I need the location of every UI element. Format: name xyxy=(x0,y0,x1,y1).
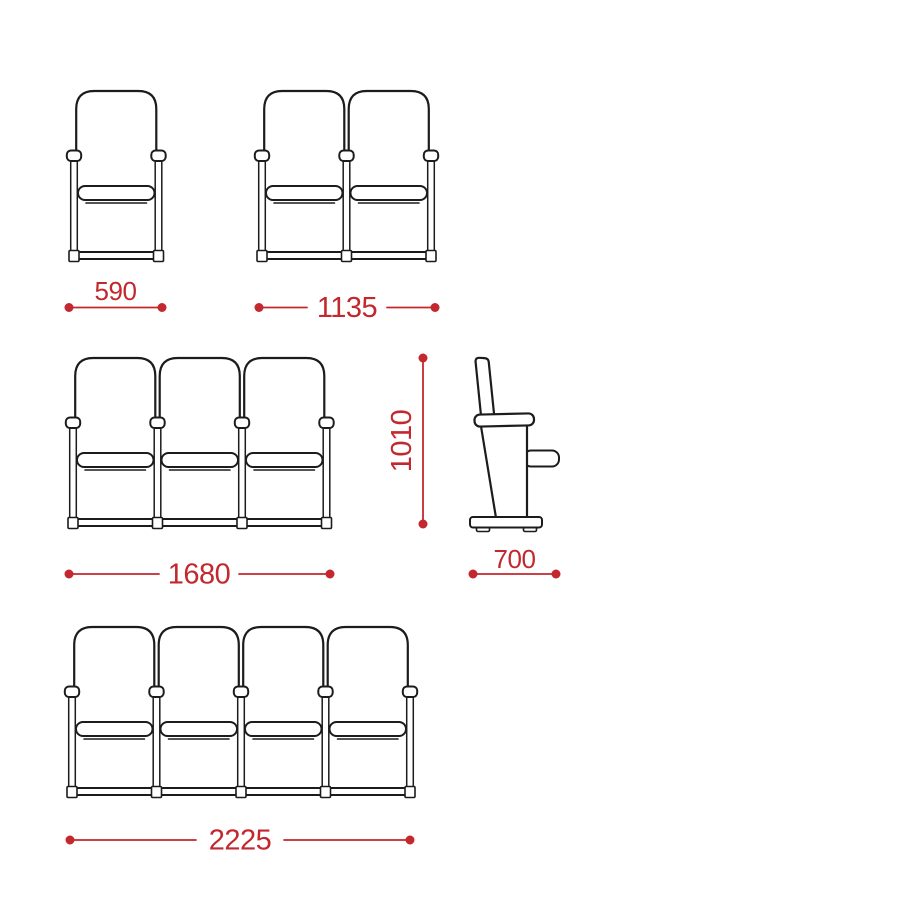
dimension-label: 1135 xyxy=(317,292,377,324)
quad-seat-front-view xyxy=(65,627,417,798)
floor-rail xyxy=(70,519,331,526)
height-dimension-1010: 1010 xyxy=(386,354,428,529)
armrest-cap xyxy=(67,151,81,162)
seat-unit xyxy=(328,627,408,739)
width-dimension-1680: 1680 xyxy=(65,559,335,591)
frame-post xyxy=(153,695,160,791)
foot-block xyxy=(236,787,246,798)
dimension-label: 700 xyxy=(494,544,536,574)
dimension-label: 1680 xyxy=(168,559,231,591)
frame-post xyxy=(71,159,78,255)
foot-block xyxy=(405,787,415,798)
armrest-side xyxy=(474,413,534,426)
armrest-cap xyxy=(151,151,165,162)
dimension-label: 1010 xyxy=(386,410,418,473)
dimension-dot xyxy=(326,570,335,579)
armrest-cap xyxy=(235,418,249,429)
seat-unit xyxy=(349,91,429,203)
armrest-cap xyxy=(403,687,417,698)
seat-unit xyxy=(160,358,240,470)
depth-dimension-700: 700 xyxy=(469,544,561,579)
seat-unit xyxy=(75,358,155,470)
seat-unit xyxy=(243,627,323,739)
frame-post xyxy=(322,695,329,791)
foot-block xyxy=(426,251,436,262)
foot-block xyxy=(321,787,331,798)
foot-block xyxy=(342,251,352,262)
dimension-dot xyxy=(552,570,561,579)
seat-unit xyxy=(159,627,239,739)
frame-post xyxy=(69,695,76,791)
foot-block xyxy=(257,251,267,262)
seat-unit xyxy=(76,91,156,203)
seating-diagram: 590 1135 xyxy=(0,0,900,900)
width-dimension-1135: 1135 xyxy=(255,292,440,324)
dimension-label: 590 xyxy=(95,276,137,306)
armrest-cap xyxy=(234,687,248,698)
armrest-cap xyxy=(65,687,79,698)
foot-block xyxy=(68,518,78,529)
dimension-dot xyxy=(431,303,440,312)
frame-post xyxy=(154,426,161,522)
dimension-label: 2225 xyxy=(209,825,272,857)
dimension-dot xyxy=(469,570,478,579)
foot-block xyxy=(67,787,77,798)
double-seat-front-view xyxy=(255,91,438,262)
dimension-dot xyxy=(419,354,428,363)
foot-block xyxy=(153,518,163,529)
single-seat-front-view xyxy=(67,91,166,262)
foot-block xyxy=(69,251,79,262)
foot-block xyxy=(237,518,247,529)
seat-unit xyxy=(74,627,154,739)
frame-post xyxy=(70,426,77,522)
seat-unit xyxy=(244,358,324,470)
foot-block xyxy=(322,518,332,529)
armrest-cap xyxy=(149,687,163,698)
dimension-dot xyxy=(419,520,428,529)
width-dimension-590: 590 xyxy=(65,276,167,312)
dimension-dot xyxy=(158,303,167,312)
armrest-cap xyxy=(66,418,80,429)
dimension-drawing-canvas: 590 1135 xyxy=(0,0,900,900)
floor-rail xyxy=(71,252,163,259)
writing-tablet xyxy=(524,451,559,467)
triple-seat-front-view xyxy=(66,358,334,529)
armrest-cap xyxy=(318,687,332,698)
seat-unit xyxy=(264,91,344,203)
armrest-cap xyxy=(255,151,269,162)
frame-post xyxy=(323,426,330,522)
armrest-cap xyxy=(339,151,353,162)
backrest-side xyxy=(476,358,495,416)
frame-post xyxy=(238,695,245,791)
dimension-dot xyxy=(255,303,264,312)
frame-post xyxy=(259,159,266,255)
armrest-cap xyxy=(319,418,333,429)
frame-post xyxy=(155,159,162,255)
armrest-cap xyxy=(150,418,164,429)
foot-block xyxy=(152,787,162,798)
frame-post xyxy=(407,695,414,791)
dimension-dot xyxy=(66,836,75,845)
foot-block xyxy=(154,251,164,262)
dimension-dot xyxy=(406,836,415,845)
folded-seat-side xyxy=(481,425,527,519)
width-dimension-2225: 2225 xyxy=(66,825,415,857)
side-view xyxy=(470,358,559,532)
dimension-dot xyxy=(65,570,74,579)
frame-post xyxy=(343,159,350,255)
base-plate xyxy=(470,517,542,528)
armrest-cap xyxy=(424,151,438,162)
frame-post xyxy=(428,159,435,255)
dimension-dot xyxy=(65,303,74,312)
frame-post xyxy=(239,426,246,522)
